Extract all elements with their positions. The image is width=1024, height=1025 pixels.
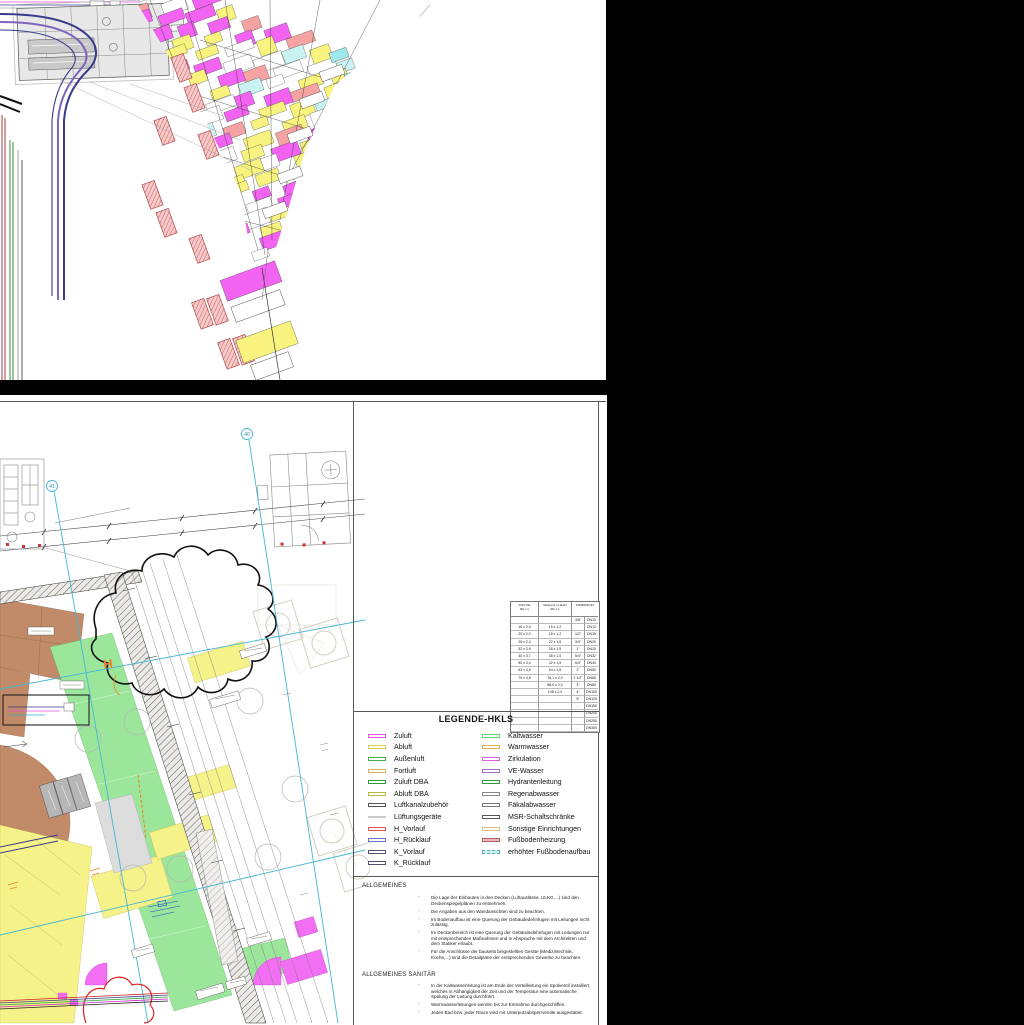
dim-table-cell: 1/2" [572,631,585,638]
dim-table-cell: DN50 [585,667,598,674]
dim-table-cell: 63 x 4,5 [511,667,539,674]
legend-swatch-icon [368,827,386,831]
legend-swatch-icon [482,745,500,749]
note-text: Die Lage der Einbauten in den Decken (Lu… [431,895,592,906]
legend-item: Zirkulation [482,753,590,765]
note-text: Die Angaben aus den Wandansichten sind z… [431,909,545,915]
legend-label: Abluft [394,743,412,751]
legend-swatch-icon [482,792,500,796]
legend-swatch-icon [368,803,386,807]
dim-table-cell: 22 x 1,5 [539,639,572,646]
legend-swatch-icon [482,757,500,761]
legend-column-right: KaltwasserWarmwasserZirkulationVE-Wasser… [482,730,590,858]
legend-swatch-icon [482,815,500,819]
dim-table-cell: DN80 [585,682,598,689]
grid-marker-41: 41 [47,481,58,492]
dim-table-cell: - [572,703,585,710]
legend-label: Abluft DBA [394,790,429,798]
dim-table-cell: 88,9 x 2,0 [539,682,572,689]
legend-item: Fortluft [368,765,448,777]
plan-fragment-right [256,451,351,549]
top-plan-sheet [0,0,606,380]
note-item: -Die Angaben aus den Wandansichten sind … [418,909,592,915]
note-item: -Für die Anschlüsse der bauseits beigest… [418,949,592,960]
dim-table-cell: 75 x 4,5 [511,675,539,682]
legend-item: Regenabwasser [482,788,590,800]
legend-swatch-icon [482,850,500,854]
legend-label: Warmwasser [508,743,549,751]
legend-item: Lüftungsgeräte [368,811,448,823]
dim-table-cell: 42 x 1,5 [539,660,572,667]
dim-table-cell: 18 x 1,2 [539,631,572,638]
note-bullet: - [418,895,431,906]
cad-viewer-canvas: { "palette": { "duct_magenta": "#f263f2"… [0,0,1024,1024]
notes-sanitary-title: ALLGEMEINES SANITÄR [362,972,436,978]
legend-label: K_Rücklauf [394,859,430,867]
note-text: Jedes Bad bzw. jeder Raum wird mit Unter… [431,1010,583,1016]
legend-swatch-icon [368,792,386,796]
legend-item: Luftkanalzubehör [368,800,448,812]
legend-label: Außenluft [394,755,424,763]
legend-swatch-icon [368,838,386,842]
dim-table-cell: DN10 [585,617,598,624]
note-bullet: - [418,930,431,947]
note-item: -Im Bodenaufbau ist eine Querung der Geb… [418,917,592,928]
legend-swatch-icon [368,734,386,738]
legend-item: Abluft [368,742,448,754]
legend-swatch-icon [482,780,500,784]
dim-table-cell: DN100 [585,689,598,696]
dim-table-cell: 35 x 1,5 [539,653,572,660]
note-bullet: - [418,949,431,960]
note-text: Warmwasserleitungen werden bis zur Entna… [431,1002,566,1008]
legend-label: MSR-Schaltschränke [508,813,575,821]
legend-swatch-icon [368,850,386,854]
dim-table-cell: 15 x 1,2 [539,624,572,631]
legend-item: Abluft DBA [368,788,448,800]
dim-table-cell: 76,1 x 2,0 [539,675,572,682]
dim-table-cell: 6/4" [572,660,585,667]
legend-swatch-icon [482,838,500,842]
dim-table-header: Mapress C-StahlØa x s [539,602,572,617]
dim-table-cell: 3" [572,682,585,689]
legend-item: Fäkalabwasser [482,800,590,812]
note-item: -Die Lage der Einbauten in den Decken (L… [418,895,592,906]
legend-item: VE-Wasser [482,765,590,777]
notes-general-title: ALLGEMEINES [362,883,407,889]
dim-table-cell: DN32 [585,653,598,660]
note-item: -Warmwasserleitungen werden bis zur Entn… [418,1002,592,1008]
legend-column-left: ZuluftAbluftAußenluftFortluftZuluft DBAA… [368,730,448,869]
legend-swatch-icon [368,769,386,773]
dim-table-cell: DN40 [585,660,598,667]
legend-label: Regenabwasser [508,790,559,798]
legend-item: Hydrantenleitung [482,776,590,788]
legend-label: Luftkanalzubehör [394,801,448,809]
legend-swatch-icon [482,734,500,738]
note-item: -Im Deckenbereich ist eine Querung der G… [418,930,592,947]
dim-table-cell [539,617,572,624]
legend-box-top [353,711,599,712]
legend-item: Zuluft DBA [368,776,448,788]
dim-table-cell [511,617,539,624]
dim-table-cell [539,703,572,710]
legend-title: LEGENDE-HKLS [353,714,599,724]
legend-swatch-icon [482,827,500,831]
legend-item: Sonstige Einrichtungen [482,823,590,835]
legend-item: Fußbodenheizung [482,834,590,846]
dim-table-cell [511,696,539,703]
note-bullet: - [418,917,431,928]
legend-item: H_Vorlauf [368,823,448,835]
dim-table-cell: 20 x 2,0 [511,631,539,638]
dim-table-header: Rohr PEØa x s [511,602,539,617]
legend-item: H_Rücklauf [368,834,448,846]
floor-plan-drawing: 41 40 H [0,395,370,1025]
legend-box-bottom [353,876,599,877]
note-item: -In der Kaltwasserleitung ist am Ende de… [418,983,592,1000]
legend-swatch-icon [368,861,386,865]
dim-table-cell: DN125 [585,696,598,703]
legend-swatch-icon [482,803,500,807]
legend-swatch-icon [368,745,386,749]
dim-table-header: DIMENSION [572,602,598,617]
dim-table-cell [511,682,539,689]
legend-label: erhöhter Fußbodenaufbau [508,848,590,856]
notes-sanitary-list: -In der Kaltwasserleitung ist am Ende de… [418,983,592,1018]
grid-marker-40: 40 [242,429,253,440]
legend-swatch-icon [368,780,386,784]
dim-table-cell: DN25 [585,646,598,653]
notes-general-list: -Die Lage der Einbauten in den Decken (L… [418,895,592,963]
dim-table-cell: 50 x 3,0 [511,660,539,667]
dim-table-cell: 3/4" [572,639,585,646]
dim-table-cell: 3/8" [572,617,585,624]
dim-table-cell: 25 x 2,3 [511,639,539,646]
note-text: Im Deckenbereich ist eine Querung der Ge… [431,930,592,947]
bottom-plan-sheet: 41 40 H [0,394,608,1025]
note-bullet: - [418,983,431,1000]
legend-label: Hydrantenleitung [508,778,562,786]
legend-label: K_Vorlauf [394,848,425,856]
legend-swatch-icon [368,757,386,761]
dim-table-cell: 32 x 2,9 [511,646,539,653]
dim-table-cell: 54 x 1,5 [539,667,572,674]
legend-item: Kaltwasser [482,730,590,742]
svg-text:41: 41 [49,484,55,490]
panel-divider [353,401,354,1025]
svg-text:40: 40 [244,432,250,438]
note-bullet: - [418,1002,431,1008]
legend-label: Lüftungsgeräte [394,813,441,821]
legend-label: H_Vorlauf [394,825,425,833]
dim-table-cell: 5" [572,696,585,703]
dim-table-cell: 5/4" [572,653,585,660]
equipment-block [13,0,186,85]
dim-table-cell: 28 x 1,5 [539,646,572,653]
legend-label: Fußbodenheizung [508,836,565,844]
inner-border-top [0,401,606,402]
dim-table-cell: 2" [572,667,585,674]
legend-label: Fortluft [394,767,416,775]
legend-label: VE-Wasser [508,767,544,775]
note-text: Für die Anschlüsse der bauseits beigeste… [431,949,592,960]
legend-label: Zuluft [394,732,412,740]
note-item: -Jedes Bad bzw. jeder Raum wird mit Unte… [418,1010,592,1016]
dim-table-cell [511,689,539,696]
legend-label: Kaltwasser [508,732,543,740]
dim-table-cell: 40 x 3,7 [511,653,539,660]
riser-lines [0,96,22,380]
legend-item: Zuluft [368,730,448,742]
note-bullet: - [418,1010,431,1016]
dim-table-cell: DN20 [585,639,598,646]
legend-swatch-icon [368,815,386,819]
dim-table-cell: DN12 [585,624,598,631]
legend-label: Zuluft DBA [394,778,428,786]
legend-label: Fäkalabwasser [508,801,556,809]
dim-table-cell: 16 x 2,0 [511,624,539,631]
legend-item: K_Rücklauf [368,858,448,870]
legend-item: Außenluft [368,753,448,765]
legend-item: Warmwasser [482,742,590,754]
note-bullet: - [418,909,431,915]
dim-table-cell: DN150 [585,703,598,710]
dim-table-cell: 1" [572,646,585,653]
top-plan-drawing [0,0,606,380]
dim-table-cell: 108 x 2,0 [539,689,572,696]
dim-table-cell: DN65 [585,675,598,682]
legend-label: H_Rücklauf [394,836,431,844]
note-text: In der Kaltwasserleitung ist am Ende der… [431,983,592,1000]
legend-item: MSR-Schaltschränke [482,811,590,823]
dim-table-cell: 2 1/2" [572,675,585,682]
dim-table-cell: DN15 [585,631,598,638]
dim-table-cell [572,624,585,631]
legend-item: erhöhter Fußbodenaufbau [482,846,590,858]
plan-fragment-left [0,459,134,572]
dim-table-cell [511,703,539,710]
note-text: Im Bodenaufbau ist eine Querung der Gebä… [431,917,592,928]
legend-label: Sonstige Einrichtungen [508,825,581,833]
dim-table-cell: 4" [572,689,585,696]
legend-label: Zirkulation [508,755,541,763]
dim-table-cell [539,696,572,703]
legend-item: K_Vorlauf [368,846,448,858]
legend-swatch-icon [482,769,500,773]
